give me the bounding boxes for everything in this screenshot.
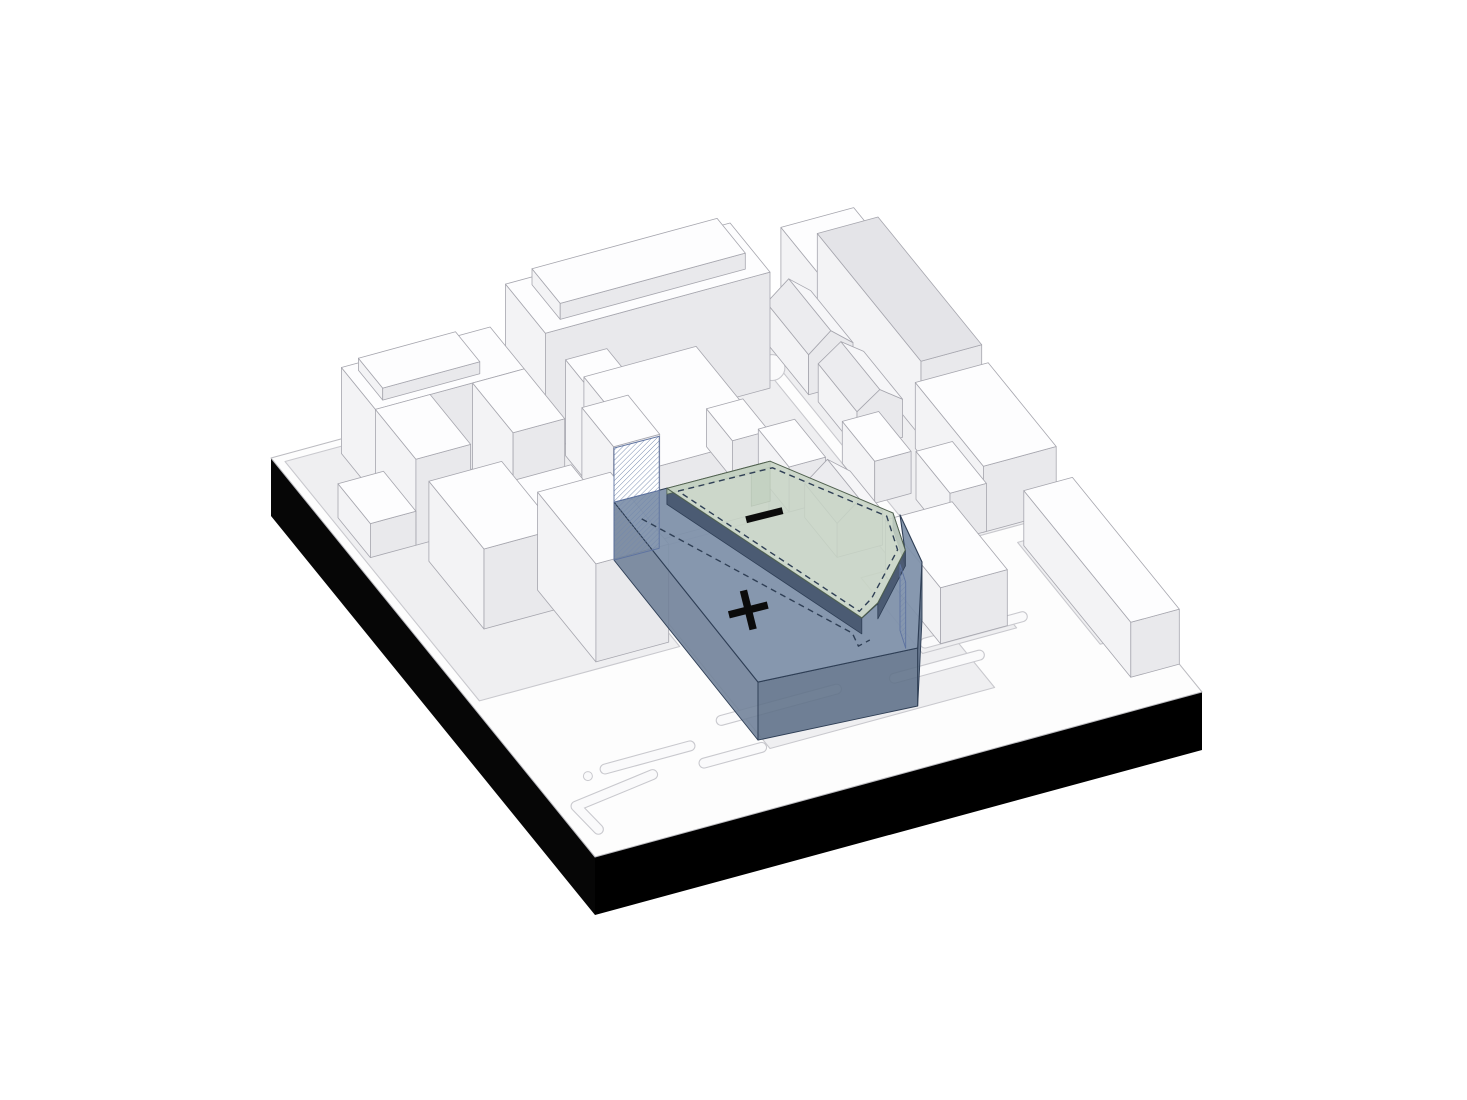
axonometric-massing-diagram: − + <box>0 0 1467 1100</box>
party-wall-hatch-nw <box>614 436 659 502</box>
street-dot <box>583 772 592 781</box>
diagram-page: − + <box>0 0 1467 1100</box>
